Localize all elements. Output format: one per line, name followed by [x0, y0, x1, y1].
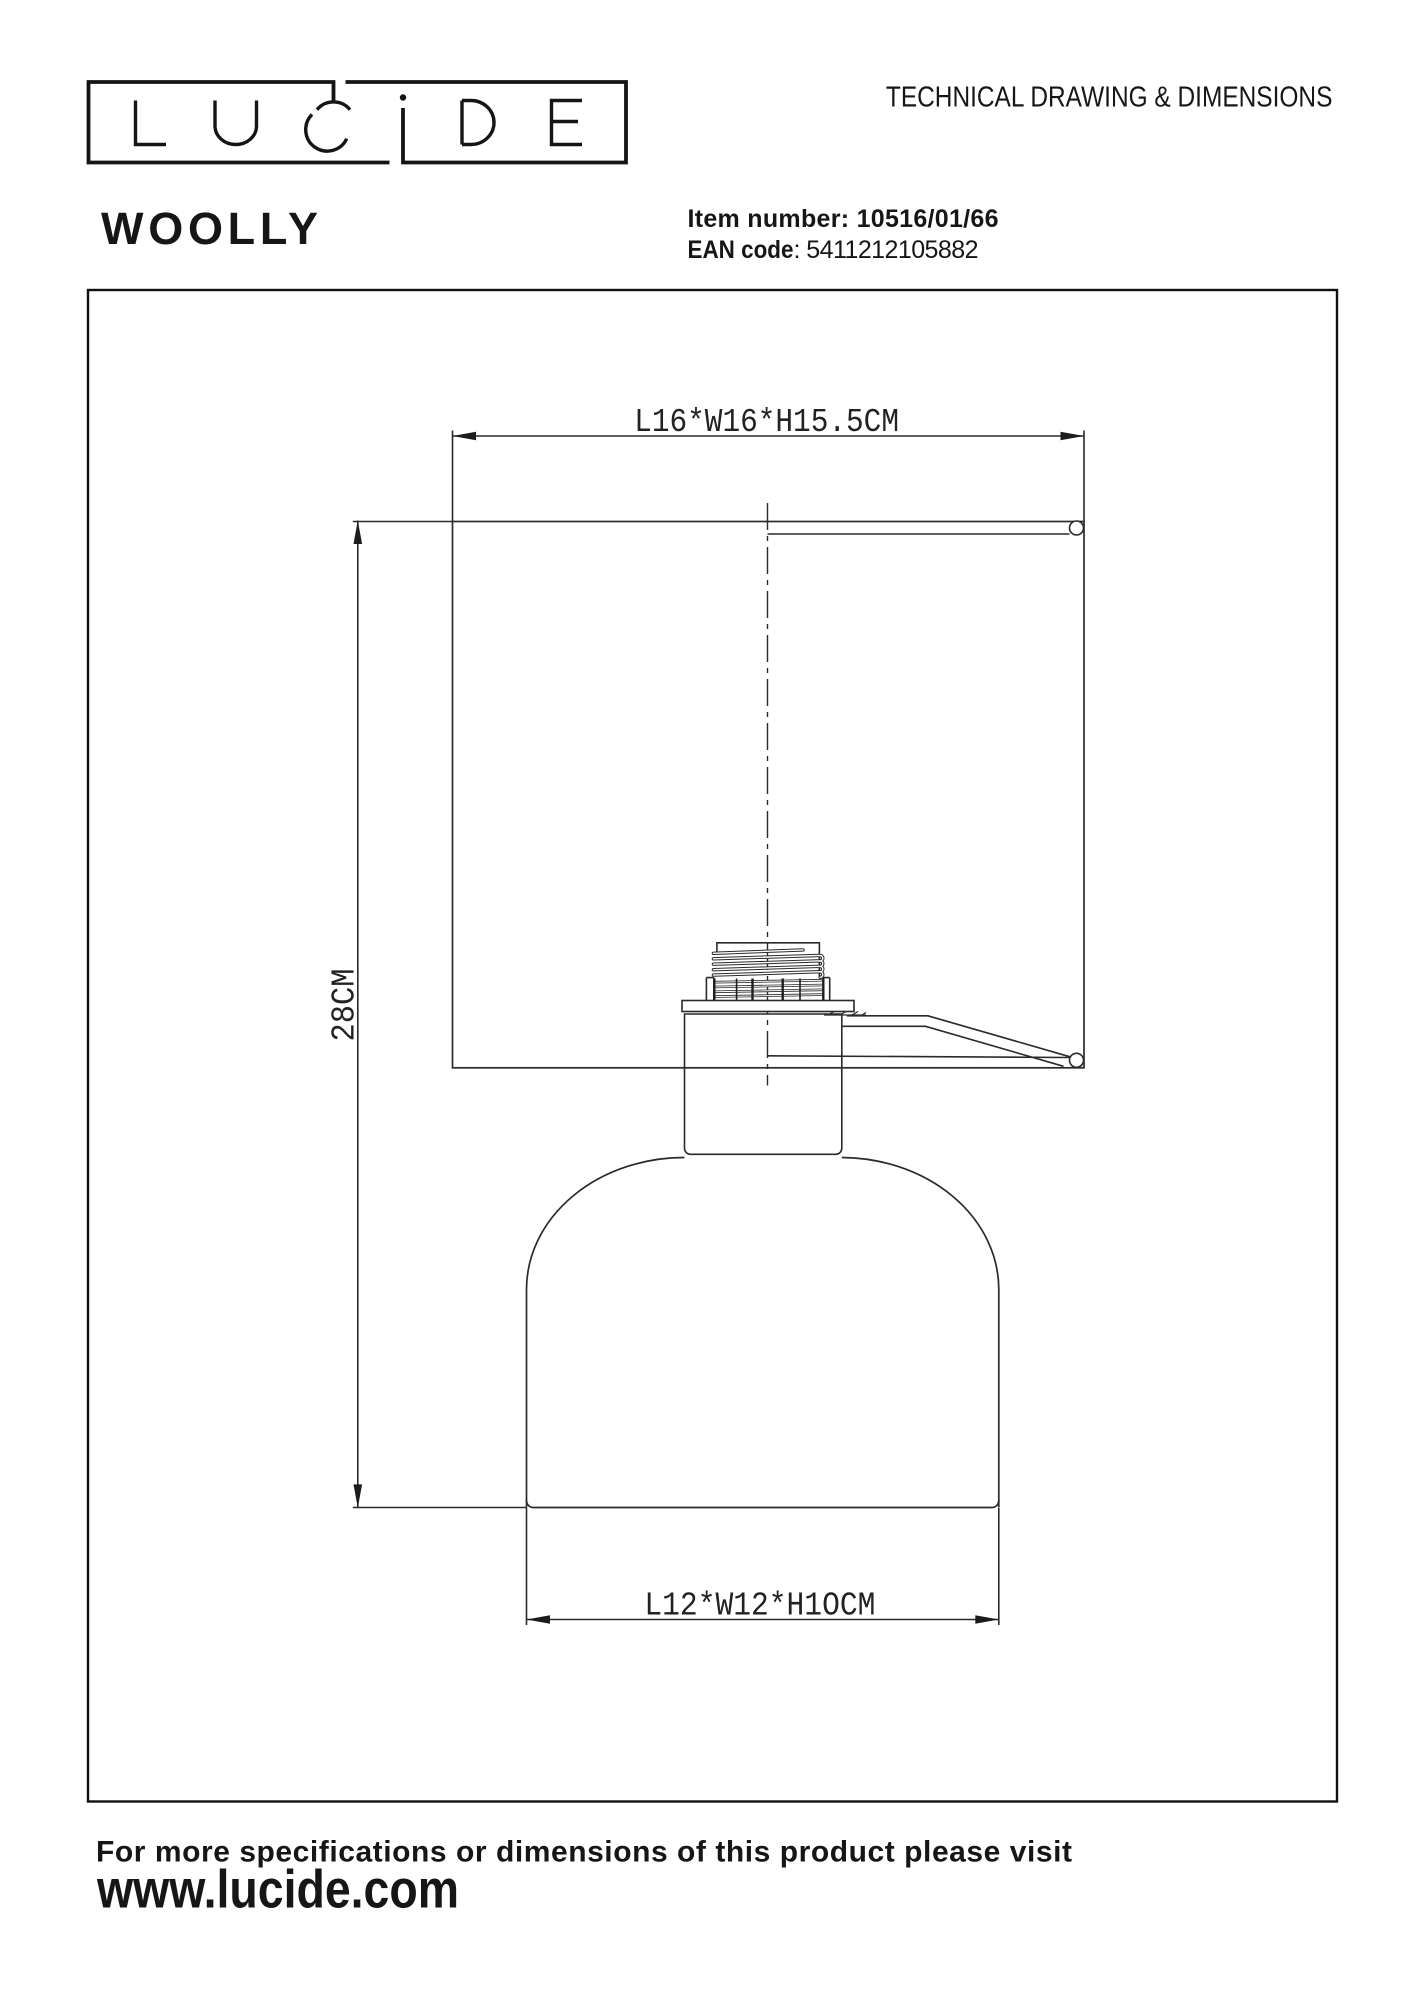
- svg-text:Item number: 10516/01/66: Item number: 10516/01/66: [688, 205, 999, 233]
- svg-text:EAN code: 5411212105882: EAN code: 5411212105882: [688, 236, 979, 264]
- svg-text:TECHNICAL DRAWING & DIMENSIONS: TECHNICAL DRAWING & DIMENSIONS: [886, 82, 1333, 114]
- svg-text:www.lucide.com: www.lucide.com: [96, 1860, 459, 1920]
